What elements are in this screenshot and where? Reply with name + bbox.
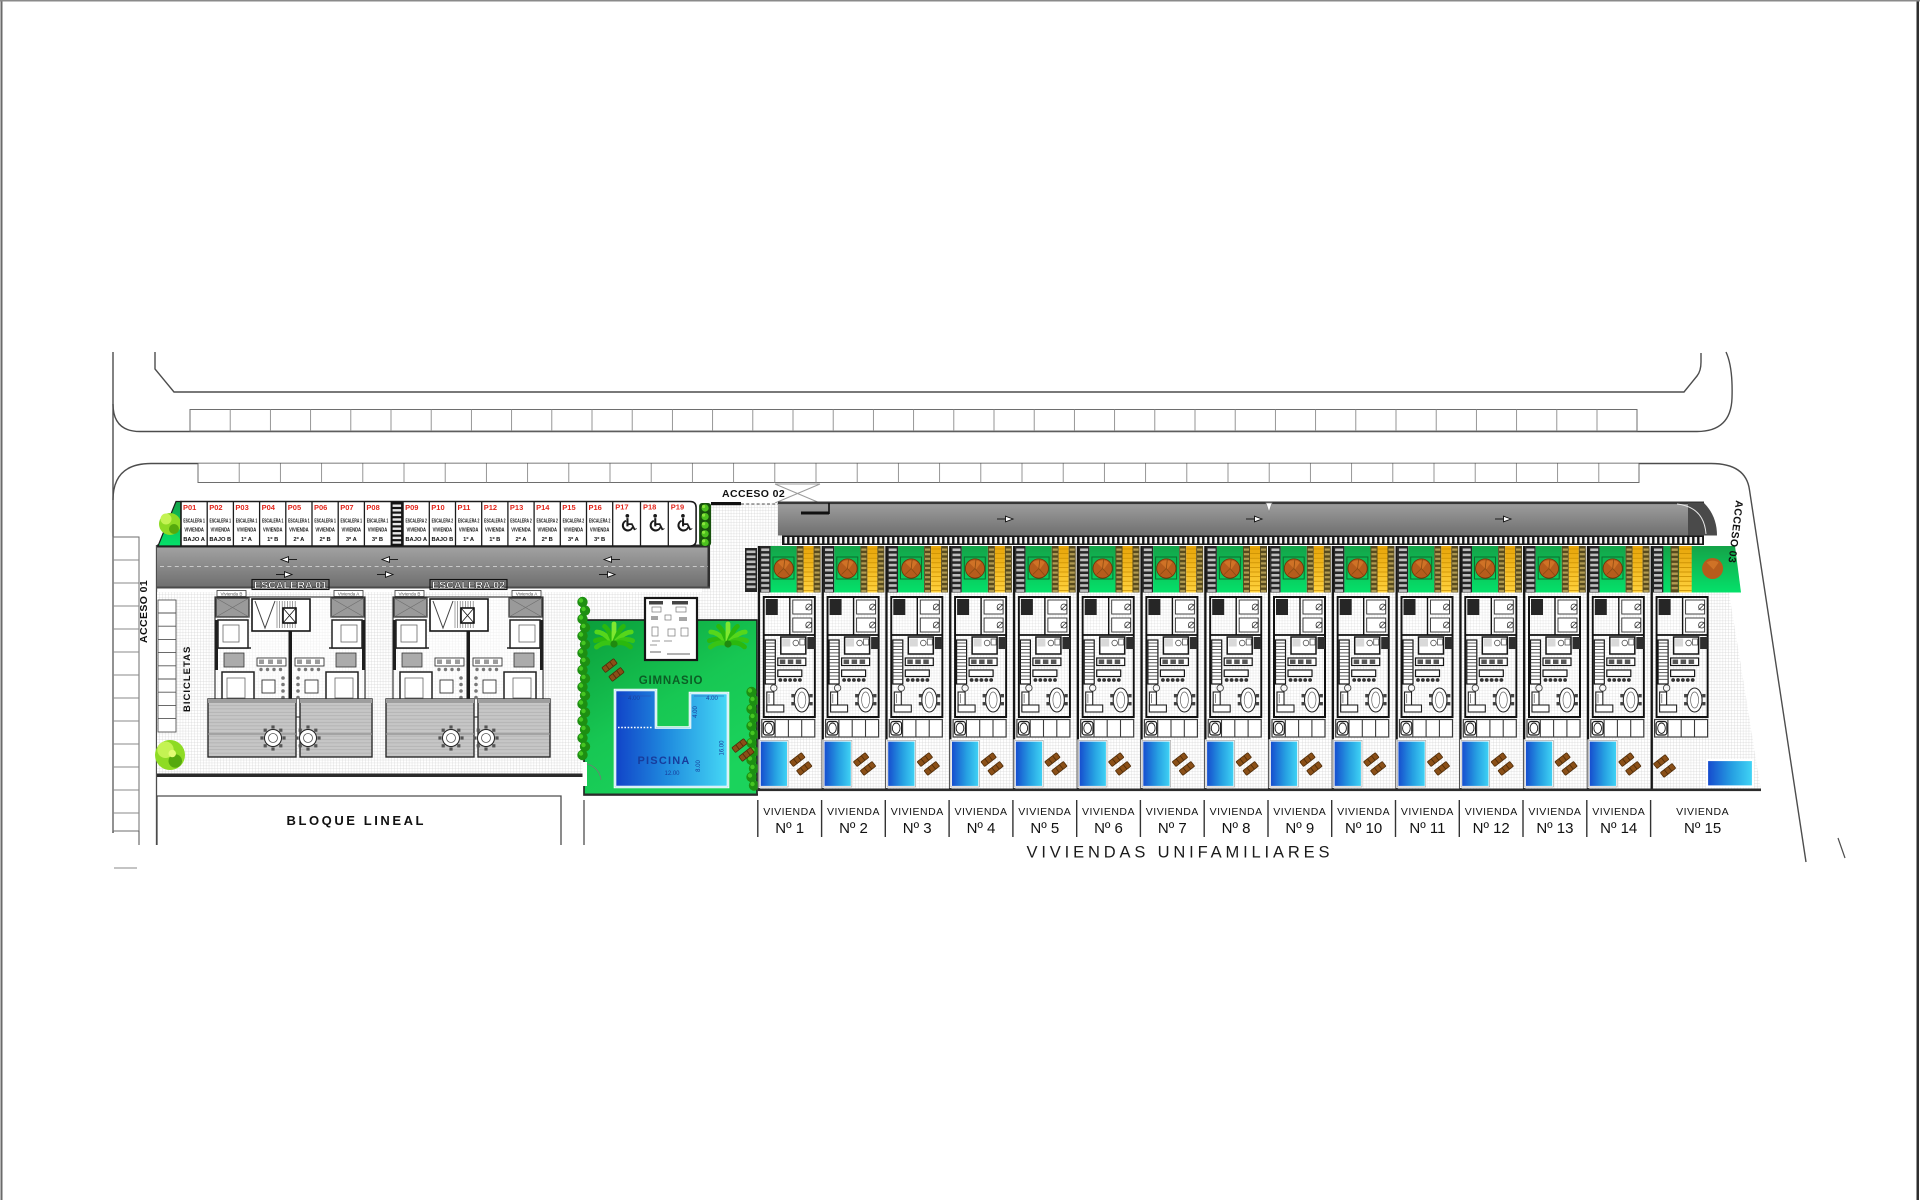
svg-text:VIVIENDA: VIVIENDA	[184, 528, 204, 534]
svg-text:Nº 2: Nº 2	[839, 820, 868, 837]
svg-text:ESCALERA 1: ESCALERA 1	[367, 519, 389, 525]
svg-text:1º A: 1º A	[463, 537, 475, 543]
svg-text:Nº 7: Nº 7	[1158, 820, 1187, 837]
svg-text:P11: P11	[458, 503, 471, 512]
svg-text:Vivienda B: Vivienda B	[399, 591, 421, 596]
svg-text:Nº 13: Nº 13	[1536, 820, 1573, 837]
svg-text:ESCALERA 2: ESCALERA 2	[432, 519, 454, 525]
svg-text:VIVIENDA: VIVIENDA	[1018, 806, 1071, 818]
svg-text:4.00: 4.00	[706, 696, 718, 702]
svg-text:ESCALERA 2: ESCALERA 2	[458, 519, 480, 525]
svg-text:VIVIENDA: VIVIENDA	[1592, 806, 1645, 818]
svg-text:2º A: 2º A	[293, 537, 305, 543]
svg-text:VIVIENDA: VIVIENDA	[433, 528, 453, 534]
svg-text:ESCALERA 2: ESCALERA 2	[484, 519, 506, 525]
svg-text:P13: P13	[510, 503, 523, 512]
svg-text:Vivienda A: Vivienda A	[338, 591, 361, 596]
svg-text:P01: P01	[183, 503, 196, 512]
svg-text:P08: P08	[366, 503, 379, 512]
svg-text:ESCALERA 1: ESCALERA 1	[236, 519, 258, 525]
svg-text:3º B: 3º B	[372, 537, 383, 543]
svg-text:ESCALERA 01: ESCALERA 01	[254, 579, 327, 591]
svg-text:P10: P10	[431, 503, 444, 512]
svg-text:ESCALERA 1: ESCALERA 1	[341, 519, 363, 525]
svg-text:ESCALERA 1: ESCALERA 1	[314, 519, 336, 525]
svg-text:P12: P12	[484, 503, 497, 512]
svg-text:3º A: 3º A	[568, 537, 580, 543]
svg-text:P04: P04	[262, 503, 276, 512]
svg-text:P03: P03	[235, 503, 248, 512]
svg-text:16.00: 16.00	[720, 740, 726, 756]
svg-text:ESCALERA 1: ESCALERA 1	[210, 519, 232, 525]
svg-text:2º B: 2º B	[542, 537, 553, 543]
svg-text:P19: P19	[671, 503, 684, 512]
svg-text:VIVIENDA: VIVIENDA	[1210, 806, 1263, 818]
svg-text:ESCALERA 2: ESCALERA 2	[405, 519, 427, 525]
svg-text:VIVIENDA: VIVIENDA	[315, 528, 335, 534]
svg-text:4.00: 4.00	[628, 696, 640, 702]
svg-text:P14: P14	[536, 503, 550, 512]
svg-text:Nº 12: Nº 12	[1473, 820, 1510, 837]
svg-text:VIVIENDA: VIVIENDA	[590, 528, 610, 534]
svg-text:VIVIENDA: VIVIENDA	[289, 528, 309, 534]
svg-text:VIVIENDA: VIVIENDA	[368, 528, 388, 534]
svg-text:P17: P17	[615, 503, 628, 512]
svg-text:P06: P06	[314, 503, 327, 512]
svg-text:1º B: 1º B	[267, 537, 278, 543]
svg-text:Nº 8: Nº 8	[1222, 820, 1251, 837]
svg-text:ESCALERA 1: ESCALERA 1	[262, 519, 284, 525]
svg-text:VIVIENDA: VIVIENDA	[1465, 806, 1518, 818]
svg-text:VIVIENDA: VIVIENDA	[406, 528, 426, 534]
svg-text:BAJO B: BAJO B	[209, 537, 231, 543]
svg-text:Nº 1: Nº 1	[775, 820, 804, 837]
svg-text:VIVIENDA: VIVIENDA	[954, 806, 1007, 818]
svg-text:8.00: 8.00	[696, 760, 702, 772]
svg-text:VIVIENDA: VIVIENDA	[537, 528, 557, 534]
svg-text:ESCALERA 2: ESCALERA 2	[563, 519, 585, 525]
svg-text:P15: P15	[562, 503, 575, 512]
svg-text:ESCALERA 02: ESCALERA 02	[432, 579, 505, 591]
svg-text:BAJO B: BAJO B	[431, 537, 453, 543]
svg-text:VIVIENDA: VIVIENDA	[827, 806, 880, 818]
svg-text:VIVIENDA: VIVIENDA	[1337, 806, 1390, 818]
svg-text:Vivienda B: Vivienda B	[221, 591, 243, 596]
svg-text:P16: P16	[589, 503, 602, 512]
svg-text:VIVIENDA: VIVIENDA	[564, 528, 584, 534]
svg-text:2º B: 2º B	[320, 537, 331, 543]
svg-text:2º A: 2º A	[516, 537, 528, 543]
svg-text:VIVIENDA: VIVIENDA	[891, 806, 944, 818]
svg-text:ACCESO 02: ACCESO 02	[722, 488, 785, 500]
svg-text:VIVIENDA: VIVIENDA	[237, 528, 257, 534]
svg-text:P09: P09	[405, 503, 418, 512]
svg-text:VIVIENDA: VIVIENDA	[1401, 806, 1454, 818]
svg-text:VIVIENDA: VIVIENDA	[459, 528, 479, 534]
svg-text:1º A: 1º A	[241, 537, 253, 543]
svg-text:ESCALERA 2: ESCALERA 2	[589, 519, 611, 525]
svg-text:VIVIENDA: VIVIENDA	[1146, 806, 1199, 818]
svg-text:Nº 11: Nº 11	[1409, 820, 1445, 837]
svg-text:VIVIENDA: VIVIENDA	[1273, 806, 1326, 818]
svg-text:3º B: 3º B	[594, 537, 605, 543]
svg-text:ESCALERA 2: ESCALERA 2	[536, 519, 558, 525]
svg-text:VIVIENDA: VIVIENDA	[1528, 806, 1581, 818]
svg-text:VIVIENDA: VIVIENDA	[211, 528, 231, 534]
svg-text:Nº 3: Nº 3	[903, 820, 932, 837]
svg-text:ESCALERA 1: ESCALERA 1	[288, 519, 310, 525]
svg-text:Vivienda A: Vivienda A	[516, 591, 539, 596]
svg-text:BAJO A: BAJO A	[183, 537, 206, 543]
svg-text:VIVIENDA: VIVIENDA	[1082, 806, 1135, 818]
svg-text:VIVIENDA: VIVIENDA	[485, 528, 505, 534]
svg-text:VIVIENDA: VIVIENDA	[263, 528, 283, 534]
svg-text:Nº 15: Nº 15	[1684, 820, 1721, 837]
svg-text:ACCESO 01: ACCESO 01	[138, 580, 150, 643]
svg-text:BICICLETAS: BICICLETAS	[182, 646, 193, 712]
svg-text:ESCALERA 1: ESCALERA 1	[183, 519, 205, 525]
svg-text:VIVIENDA: VIVIENDA	[1676, 806, 1729, 818]
svg-text:PISCINA: PISCINA	[637, 755, 690, 767]
svg-text:P02: P02	[209, 503, 222, 512]
svg-text:Nº 10: Nº 10	[1345, 820, 1382, 837]
svg-text:Nº 14: Nº 14	[1600, 820, 1637, 837]
svg-text:4.00: 4.00	[693, 706, 699, 718]
svg-text:Nº 5: Nº 5	[1030, 820, 1059, 837]
svg-text:P05: P05	[288, 503, 301, 512]
svg-text:Nº 4: Nº 4	[967, 820, 996, 837]
svg-text:VIVIENDA: VIVIENDA	[763, 806, 816, 818]
svg-text:P18: P18	[643, 503, 656, 512]
svg-text:Nº 6: Nº 6	[1094, 820, 1123, 837]
svg-text:BAJO A: BAJO A	[405, 537, 428, 543]
svg-text:3º A: 3º A	[346, 537, 358, 543]
svg-text:GIMNASIO: GIMNASIO	[639, 675, 704, 687]
svg-text:VIVIENDA: VIVIENDA	[511, 528, 531, 534]
svg-text:12.00: 12.00	[664, 771, 680, 777]
svg-text:VIVIENDA: VIVIENDA	[342, 528, 362, 534]
svg-text:P07: P07	[340, 503, 353, 512]
svg-text:1º B: 1º B	[489, 537, 500, 543]
svg-text:Nº 9: Nº 9	[1285, 820, 1314, 837]
svg-text:ESCALERA 2: ESCALERA 2	[510, 519, 532, 525]
